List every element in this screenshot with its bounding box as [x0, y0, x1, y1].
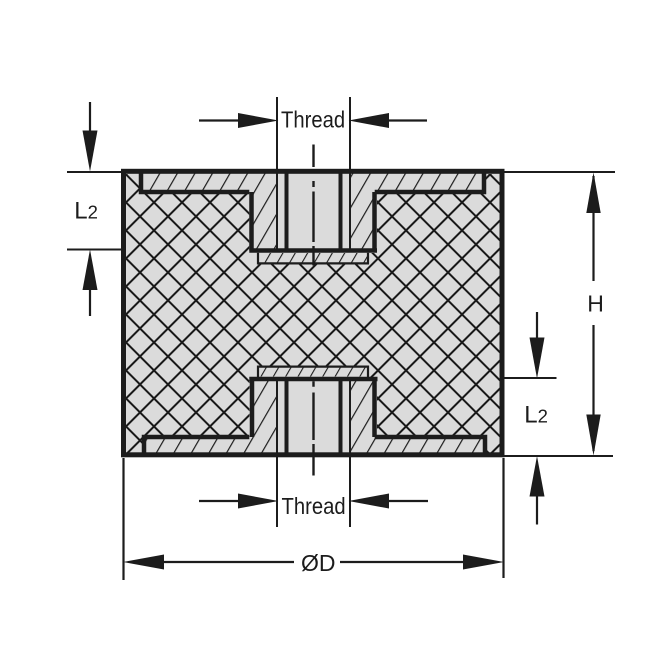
svg-text:ØD: ØD [301, 550, 336, 576]
svg-text:Thread: Thread [282, 493, 346, 520]
svg-text:L2: L2 [524, 401, 548, 428]
svg-text:L2: L2 [74, 198, 98, 225]
svg-text:H: H [587, 291, 604, 317]
svg-text:Thread: Thread [281, 106, 345, 133]
